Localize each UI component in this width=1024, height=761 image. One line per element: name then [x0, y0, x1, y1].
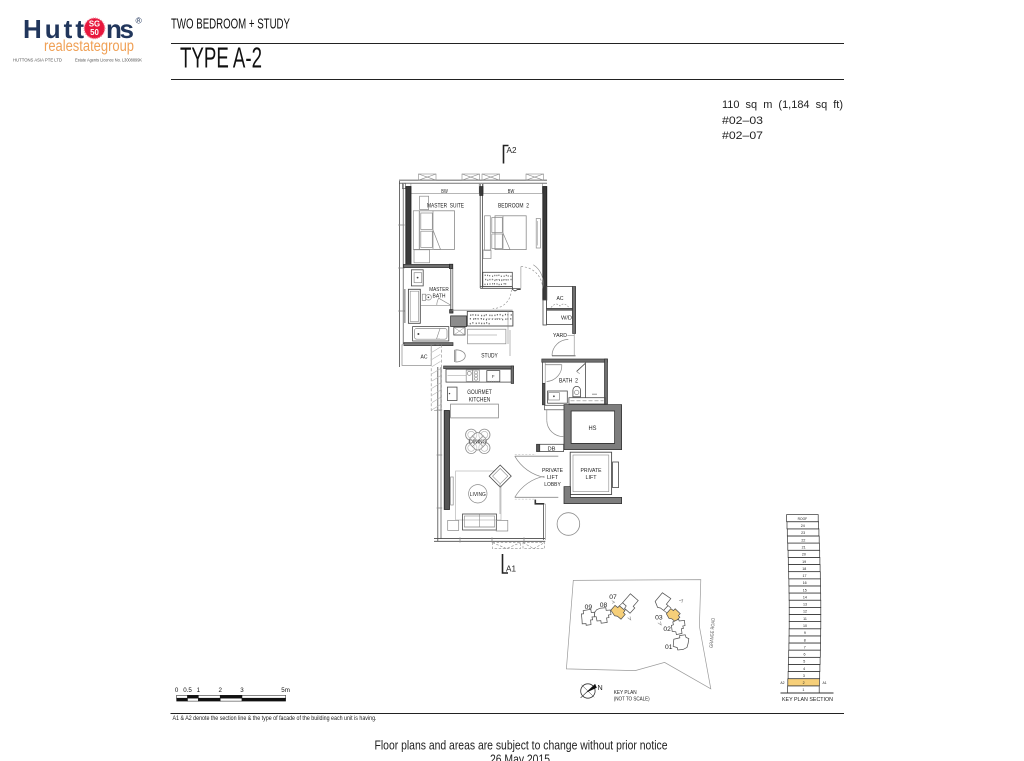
svg-text:19: 19 [802, 560, 806, 564]
svg-text:F: F [492, 374, 495, 379]
svg-text:16: 16 [803, 581, 807, 585]
svg-text:TWO BEDROOM + STUDY: TWO BEDROOM + STUDY [171, 17, 290, 33]
svg-text:5m: 5m [281, 687, 290, 694]
svg-text:23: 23 [801, 531, 805, 535]
svg-text:8: 8 [804, 638, 806, 642]
svg-text:A2: A2 [780, 681, 784, 685]
svg-text:21: 21 [802, 545, 806, 549]
svg-text:15: 15 [803, 588, 807, 592]
svg-text:24: 24 [801, 524, 805, 528]
svg-text:YARD: YARD [553, 333, 567, 339]
svg-text:LOBBY: LOBBY [544, 482, 561, 488]
svg-text:02: 02 [663, 626, 671, 633]
svg-text:Floor plans and areas are subj: Floor plans and areas are subject to cha… [375, 738, 668, 753]
svg-text:0: 0 [175, 687, 179, 694]
svg-text:KEY PLAN: KEY PLAN [614, 690, 637, 696]
svg-text:STUDY: STUDY [481, 353, 498, 360]
svg-text:KITCHEN: KITCHEN [469, 397, 491, 403]
svg-text:2: 2 [803, 681, 805, 685]
svg-text:07: 07 [609, 594, 617, 601]
svg-text:50: 50 [90, 28, 99, 37]
svg-text:realestategroup: realestategroup [44, 38, 134, 55]
svg-text:A2: A2 [507, 145, 517, 155]
svg-text:08: 08 [600, 602, 608, 609]
svg-text:DINING: DINING [469, 439, 486, 445]
svg-text:0.5: 0.5 [183, 687, 192, 694]
svg-text:A1 & A2 denote the section lin: A1 & A2 denote the section line & the ty… [173, 715, 377, 722]
svg-text:03: 03 [655, 614, 663, 621]
svg-text:10: 10 [803, 624, 807, 628]
svg-text:LIVING: LIVING [470, 492, 486, 498]
svg-text:AC: AC [421, 354, 428, 360]
svg-text:TYPE A-2: TYPE A-2 [180, 43, 262, 75]
svg-text:PRIVATE: PRIVATE [581, 468, 602, 474]
svg-text:3: 3 [803, 674, 805, 678]
svg-text:HUTTONS ASIA PTE LTD: HUTTONS ASIA PTE LTD [13, 58, 63, 63]
svg-text:GRANGE ROAD: GRANGE ROAD [709, 617, 717, 648]
svg-text:LIFT: LIFT [547, 475, 558, 481]
svg-text:22: 22 [801, 538, 805, 542]
svg-text:01: 01 [665, 644, 673, 651]
svg-text:09: 09 [585, 604, 593, 611]
svg-text:13: 13 [803, 603, 807, 607]
svg-text:DB: DB [548, 446, 556, 452]
svg-text:17: 17 [803, 574, 807, 578]
svg-text:7: 7 [804, 645, 806, 649]
svg-text:20: 20 [802, 553, 806, 557]
svg-text:GOURMET: GOURMET [467, 390, 492, 396]
svg-text:18: 18 [802, 567, 806, 571]
svg-text:#02–03: #02–03 [722, 115, 763, 127]
svg-text:ROOF: ROOF [798, 517, 808, 521]
svg-text:(NOT TO SCALE): (NOT TO SCALE) [614, 697, 650, 703]
svg-text:BW: BW [441, 189, 448, 195]
svg-text:11: 11 [803, 617, 807, 621]
svg-text:1: 1 [197, 687, 201, 694]
svg-text:BATH 2: BATH 2 [559, 378, 579, 384]
svg-text:26 May 2015: 26 May 2015 [490, 752, 550, 761]
svg-text:BW: BW [508, 189, 515, 195]
svg-text:A1: A1 [823, 681, 827, 685]
svg-text:5: 5 [803, 660, 805, 664]
svg-text:HS: HS [589, 425, 597, 432]
svg-text:6: 6 [804, 653, 806, 657]
svg-text:W/D: W/D [561, 315, 572, 321]
svg-text:BEDROOM 2: BEDROOM 2 [498, 203, 529, 210]
svg-text:LIFT: LIFT [586, 475, 597, 481]
svg-text:Estate Agents Licence No. L300: Estate Agents Licence No. L3008899K [75, 58, 143, 63]
svg-text:4: 4 [803, 667, 805, 671]
svg-text:AC: AC [557, 296, 564, 302]
svg-text:14: 14 [803, 595, 807, 599]
svg-text:2: 2 [218, 687, 222, 694]
svg-text:9: 9 [804, 631, 806, 635]
svg-text:MASTER: MASTER [429, 287, 449, 293]
svg-text:N: N [598, 683, 603, 692]
svg-text:110 sq m (1,184 sq ft): 110 sq m (1,184 sq ft) [722, 99, 843, 111]
svg-text:3: 3 [240, 687, 244, 694]
svg-text:KEY PLAN SECTION: KEY PLAN SECTION [782, 697, 833, 703]
svg-text:#02–07: #02–07 [722, 130, 763, 142]
svg-text:A1: A1 [506, 564, 516, 574]
svg-text:PRIVATE: PRIVATE [542, 468, 563, 474]
svg-text:MASTER SUITE: MASTER SUITE [427, 203, 464, 210]
svg-text:®: ® [136, 16, 143, 26]
svg-text:12: 12 [803, 610, 807, 614]
svg-text:1: 1 [802, 688, 804, 692]
